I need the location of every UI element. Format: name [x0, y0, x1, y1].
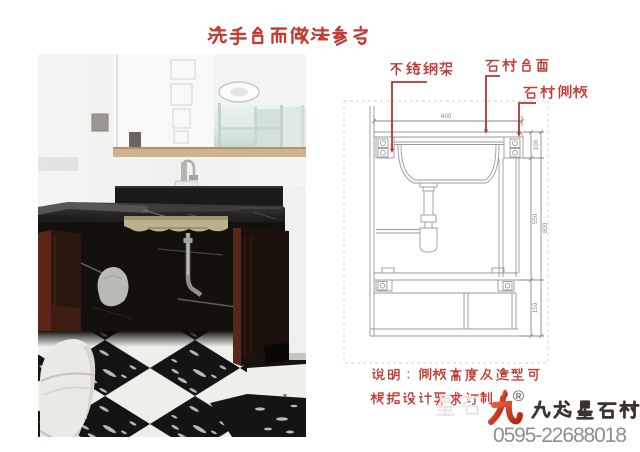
svg-text:100: 100 — [533, 139, 540, 150]
svg-text:550: 550 — [532, 213, 539, 224]
svg-text:600: 600 — [441, 113, 452, 120]
svg-text:800: 800 — [542, 222, 549, 233]
svg-text:150: 150 — [532, 302, 539, 313]
